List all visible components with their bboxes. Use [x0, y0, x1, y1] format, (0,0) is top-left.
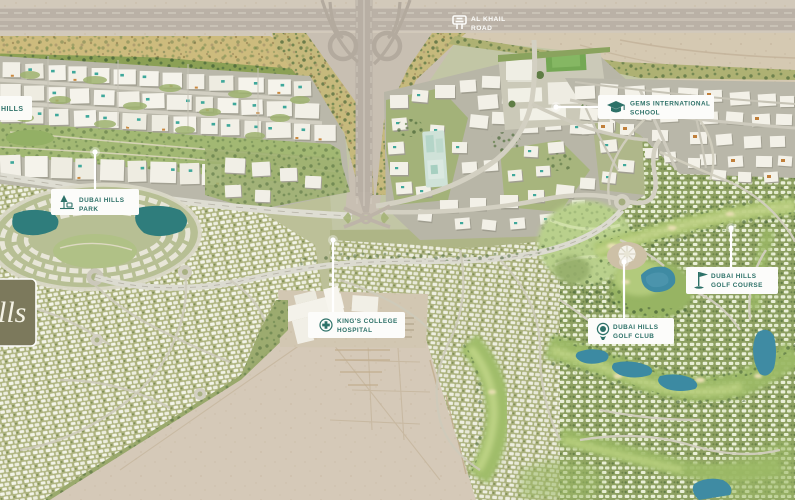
svg-text:DUBAI HILLS: DUBAI HILLS [79, 197, 125, 204]
svg-text:DUBAI HILLS: DUBAI HILLS [711, 273, 757, 280]
svg-text:lls: lls [0, 296, 26, 329]
svg-text:PARK: PARK [79, 206, 98, 213]
svg-text:SCHOOL: SCHOOL [630, 110, 660, 117]
svg-text:GOLF COURSE: GOLF COURSE [711, 282, 763, 289]
svg-text:GOLF CLUB: GOLF CLUB [613, 333, 654, 340]
svg-text:GEMS INTERNATIONAL: GEMS INTERNATIONAL [630, 101, 710, 108]
svg-text:HILLS: HILLS [1, 106, 23, 113]
svg-text:DUBAI HILLS: DUBAI HILLS [613, 324, 659, 331]
svg-text:ROAD: ROAD [471, 25, 492, 32]
svg-text:KING'S COLLEGE: KING'S COLLEGE [337, 318, 398, 325]
svg-text:AL KHAIL: AL KHAIL [471, 16, 506, 23]
svg-text:HOSPITAL: HOSPITAL [337, 327, 372, 334]
